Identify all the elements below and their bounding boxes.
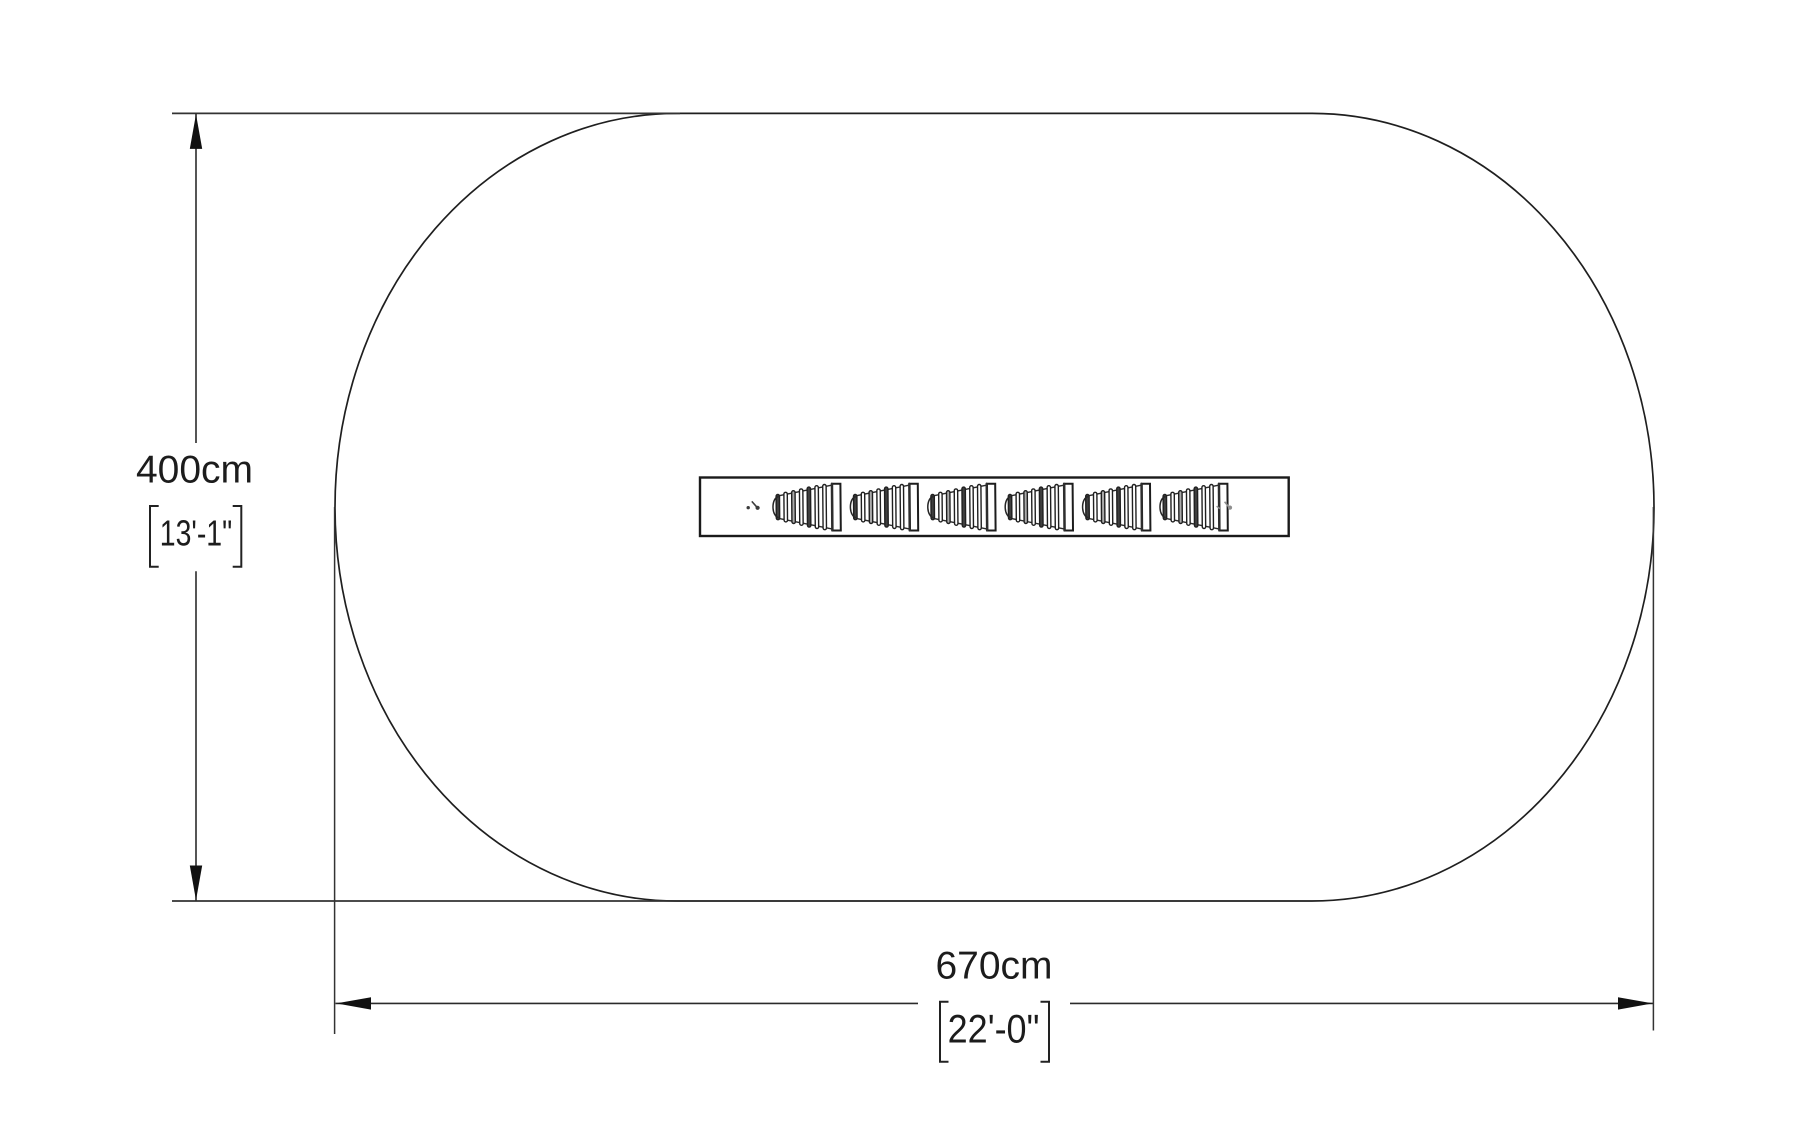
svg-text:13'-1": 13'-1" — [160, 513, 232, 553]
svg-text:400cm: 400cm — [136, 449, 253, 492]
svg-text:670cm: 670cm — [935, 945, 1052, 988]
svg-text:22'-0": 22'-0" — [948, 1008, 1040, 1052]
